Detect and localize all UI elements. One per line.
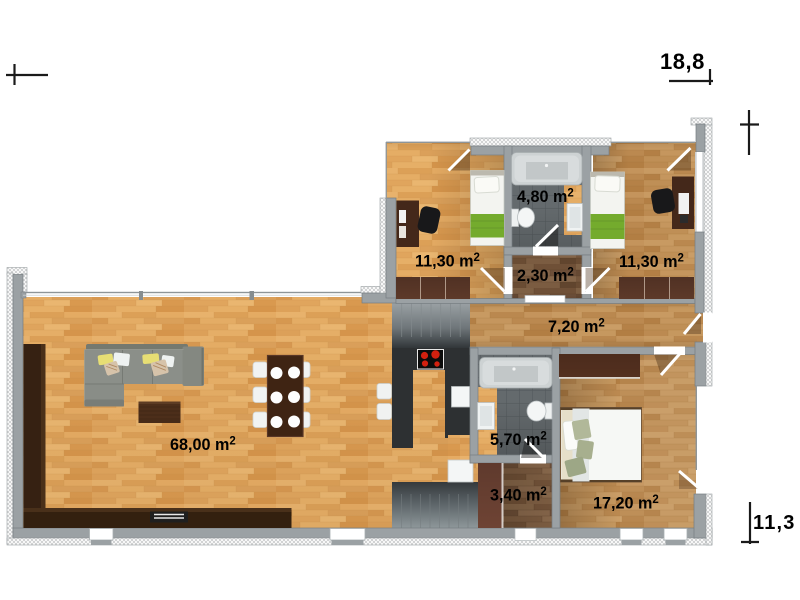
- svg-text:4,80 m2: 4,80 m2: [517, 188, 574, 207]
- svg-text:5,70 m2: 5,70 m2: [490, 431, 547, 450]
- svg-text:7,20 m2: 7,20 m2: [548, 318, 605, 337]
- svg-text:17,20 m2: 17,20 m2: [593, 494, 659, 513]
- svg-text:11,3: 11,3: [753, 512, 796, 534]
- svg-text:18,8: 18,8: [660, 49, 705, 74]
- svg-text:11,30 m2: 11,30 m2: [415, 252, 480, 271]
- svg-text:3,40 m2: 3,40 m2: [490, 486, 547, 505]
- svg-text:2,30 m2: 2,30 m2: [517, 267, 574, 286]
- svg-text:68,00 m2: 68,00 m2: [170, 436, 236, 455]
- svg-text:11,30 m2: 11,30 m2: [619, 253, 684, 272]
